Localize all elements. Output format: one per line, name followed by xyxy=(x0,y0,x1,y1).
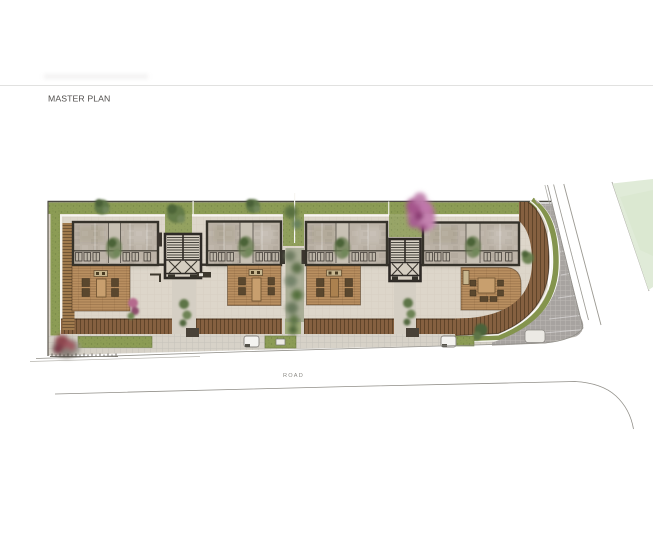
svg-text:MASTER PLAN: MASTER PLAN xyxy=(48,94,110,104)
svg-text:ROAD: ROAD xyxy=(283,373,304,379)
